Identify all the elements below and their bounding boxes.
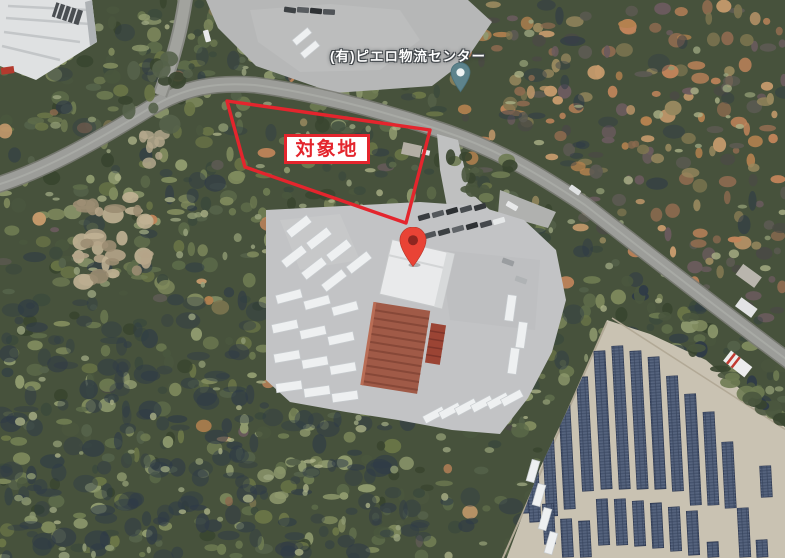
location-marker-icon[interactable] — [399, 227, 427, 267]
target-site-label: 対象地 — [284, 134, 370, 164]
poi-pin-icon[interactable] — [450, 62, 471, 93]
place-label-logistics-center[interactable]: (有)ピエロ物流センター — [318, 45, 498, 65]
map-viewport[interactable]: (有)ピエロ物流センター 対象地 — [0, 0, 785, 558]
satellite-imagery — [0, 0, 785, 558]
